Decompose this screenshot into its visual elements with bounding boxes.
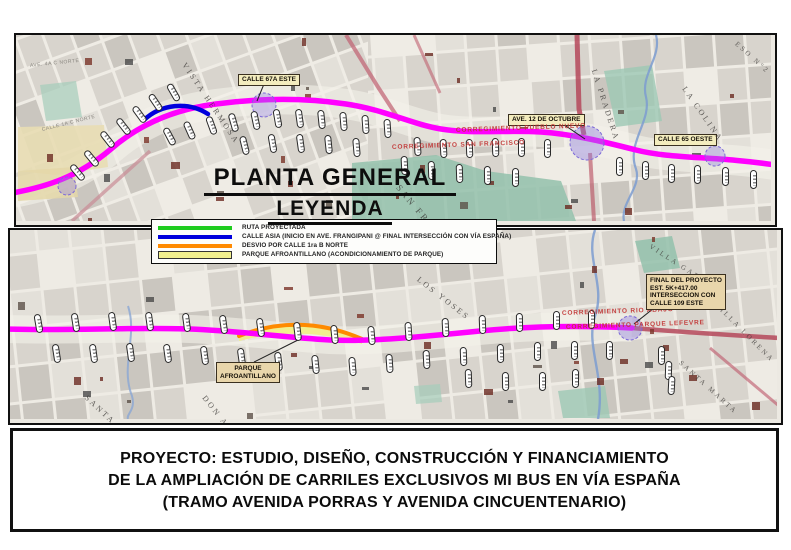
parque-label-line1: PARQUE <box>220 365 276 373</box>
legend-title: LEYENDA <box>268 197 391 225</box>
station-marker <box>296 134 306 154</box>
street-label-calle-67a: CALLE 67A ESTE <box>238 74 300 86</box>
station-marker <box>572 369 579 388</box>
final-box-line4: CALLE 109 ESTE <box>650 300 722 308</box>
station-marker <box>330 325 339 345</box>
title-block: PROYECTO: ESTUDIO, DISEÑO, CONSTRUCCIÓN … <box>10 428 779 532</box>
station-marker <box>502 372 509 391</box>
legend-row: DESVIO POR CALLE 1ra B NORTE <box>158 241 490 250</box>
parque-afroantillano-label: PARQUE AFROANTILLANO <box>216 362 280 383</box>
legend-swatch-parque <box>158 251 232 259</box>
station-marker <box>722 167 729 186</box>
station-marker <box>465 369 473 388</box>
title-block-line2: DE LA AMPLIACIÓN DE CARRILES EXCLUSIVOS … <box>13 470 776 492</box>
street-label-calle-65-oeste: CALLE 65 OESTE <box>654 134 717 146</box>
station-marker <box>512 168 519 187</box>
station-marker <box>479 315 487 334</box>
station-marker <box>71 313 81 333</box>
station-marker <box>352 138 361 158</box>
station-marker <box>250 110 261 130</box>
station-marker <box>553 311 560 330</box>
station-marker <box>33 314 43 334</box>
station-marker <box>69 163 87 182</box>
legend-label: PARQUE AFROANTILLANO (ACONDICIONAMIENTO … <box>242 251 443 258</box>
sheet-titles: PLANTA GENERAL LEYENDA <box>160 164 500 225</box>
station-marker <box>145 312 155 332</box>
station-marker <box>442 318 450 337</box>
final-box-line3: INTERSECCION CON <box>650 292 722 300</box>
station-marker <box>516 313 523 332</box>
station-marker <box>99 130 116 149</box>
station-marker <box>200 346 210 366</box>
station-marker <box>52 344 62 364</box>
legend-row: PARQUE AFROANTILLANO (ACONDICIONAMIENTO … <box>158 250 490 259</box>
station-marker <box>571 341 578 360</box>
station-marker <box>311 355 320 375</box>
station-marker <box>182 313 192 333</box>
station-marker <box>267 134 277 154</box>
plan-sheet: CALLE 67A ESTE AVE. 12 DE OCTUBRE CALLE … <box>0 0 791 550</box>
station-marker <box>163 344 173 364</box>
station-marker <box>256 318 266 338</box>
station-marker <box>616 157 623 176</box>
legend-box: RUTA PROYECTADA CALLE ASIA (INICIO EN AV… <box>151 219 497 264</box>
station-marker <box>404 322 412 341</box>
station-marker <box>658 346 665 365</box>
station-marker <box>668 164 675 183</box>
station-marker <box>89 344 99 364</box>
station-marker <box>339 112 348 132</box>
station-marker <box>385 354 393 373</box>
final-box-line2: EST. 5K+417.00 <box>650 285 722 293</box>
station-marker <box>131 105 148 124</box>
station-marker <box>162 126 177 146</box>
station-marker <box>317 110 326 130</box>
final-box-line1: FINAL DEL PROYECTO <box>650 277 722 285</box>
station-marker <box>293 322 302 342</box>
station-marker <box>272 109 282 129</box>
station-marker <box>348 357 357 377</box>
station-marker <box>642 161 649 180</box>
station-marker <box>361 115 369 134</box>
station-marker <box>606 341 613 360</box>
map-title: PLANTA GENERAL <box>204 164 457 196</box>
station-marker <box>115 117 132 136</box>
final-del-proyecto-box: FINAL DEL PROYECTO EST. 5K+417.00 INTERS… <box>646 274 726 310</box>
station-marker <box>182 120 196 140</box>
station-marker <box>324 135 333 155</box>
station-marker <box>497 344 504 363</box>
parque-label-line2: AFROANTILLANO <box>220 373 276 381</box>
station-marker <box>694 165 701 184</box>
legend-row: CALLE ASIA (INICIO EN AVE. FRANGIPANI @ … <box>158 232 490 241</box>
station-marker <box>383 119 391 138</box>
station-marker <box>534 342 541 361</box>
legend-swatch-ruta-proyectada <box>158 226 232 230</box>
station-marker <box>668 376 676 395</box>
station-marker <box>539 372 546 391</box>
station-marker <box>460 347 468 366</box>
station-marker <box>544 139 551 158</box>
title-block-line3: (TRAMO AVENIDA PORRAS Y AVENIDA CINCUENT… <box>13 492 776 514</box>
station-marker <box>750 170 757 189</box>
station-marker <box>423 350 431 369</box>
legend-swatch-desvio <box>158 244 232 248</box>
station-marker <box>219 315 229 335</box>
title-block-line1: PROYECTO: ESTUDIO, DISEÑO, CONSTRUCCIÓN … <box>13 448 776 470</box>
station-marker <box>147 93 163 113</box>
legend-label: CALLE ASIA (INICIO EN AVE. FRANGIPANI @ … <box>242 233 511 240</box>
station-marker <box>126 343 136 363</box>
station-marker <box>166 83 182 103</box>
legend-swatch-calle-asia <box>158 235 232 239</box>
station-marker <box>295 109 305 129</box>
station-marker <box>83 149 101 168</box>
legend-label: RUTA PROYECTADA <box>242 224 306 231</box>
station-marker <box>367 326 376 346</box>
legend-label: DESVIO POR CALLE 1ra B NORTE <box>242 242 348 249</box>
station-marker <box>108 312 118 332</box>
